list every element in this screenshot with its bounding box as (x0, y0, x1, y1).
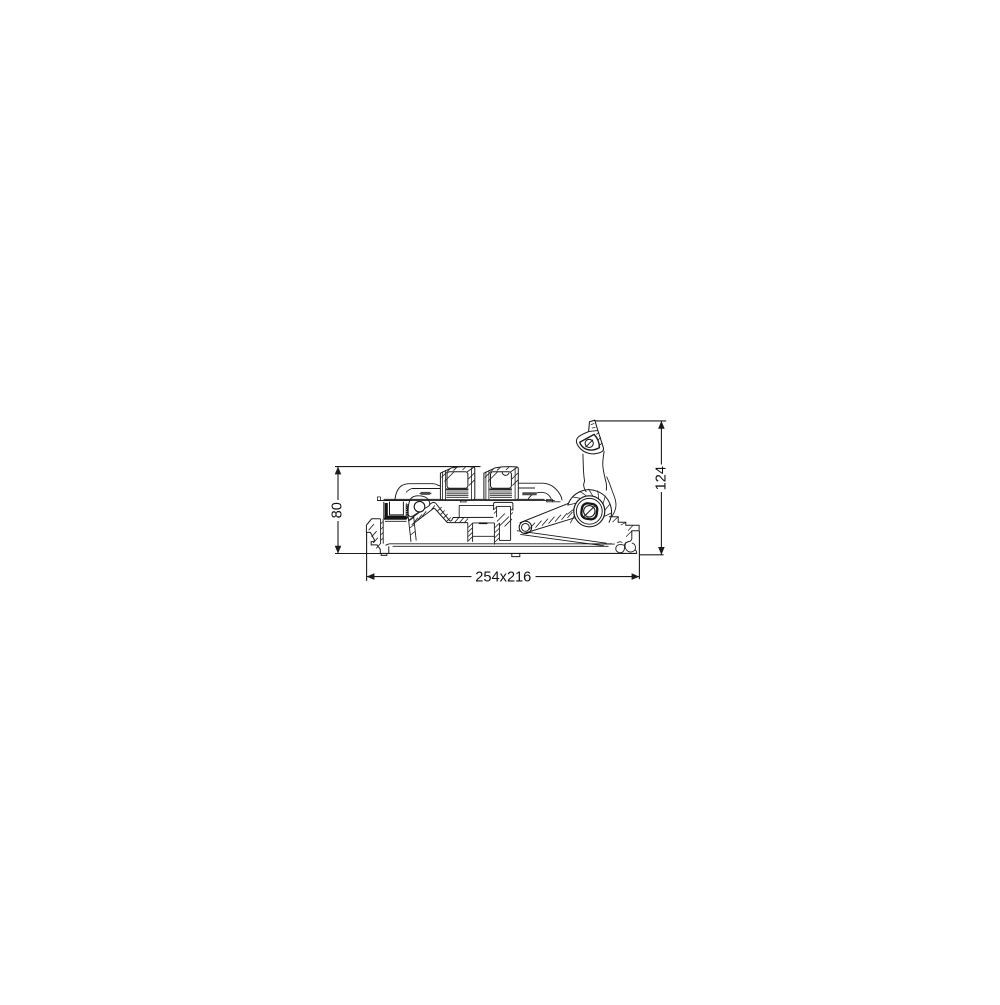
svg-text:254x216: 254x216 (475, 570, 531, 586)
svg-text:80: 80 (330, 502, 346, 518)
svg-text:124: 124 (654, 466, 670, 490)
